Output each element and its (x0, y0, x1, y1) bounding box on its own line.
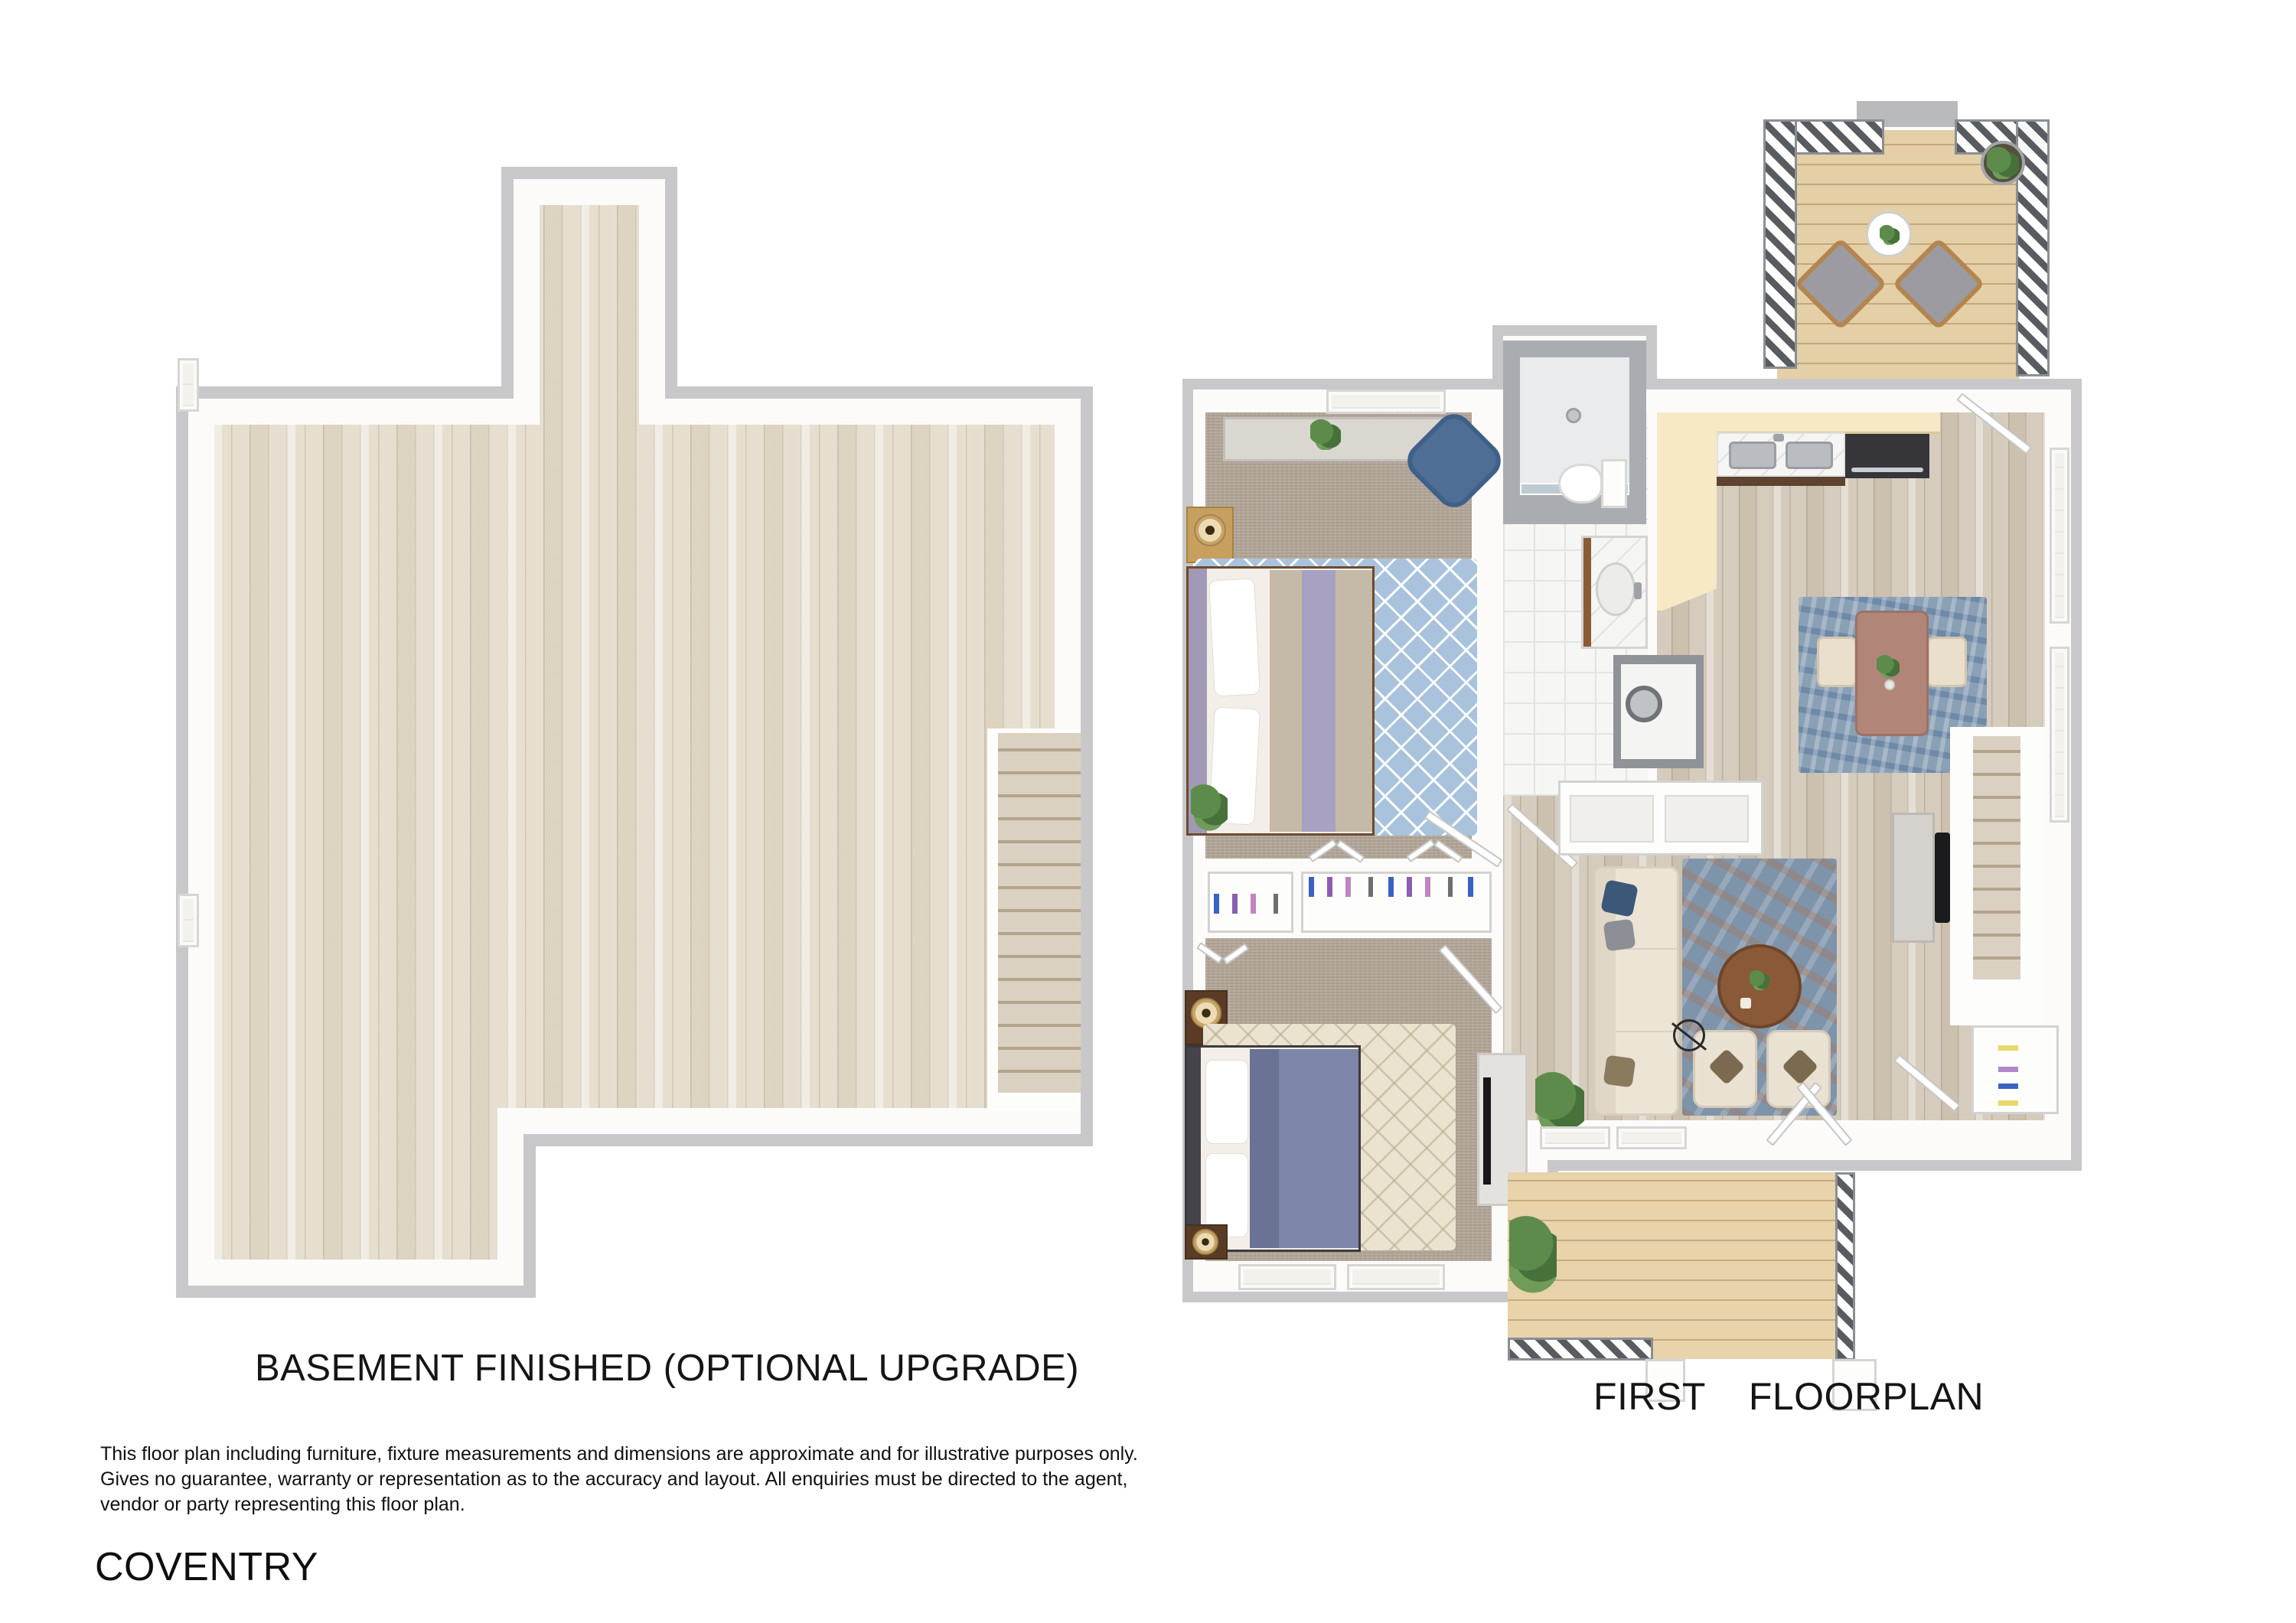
living-window-sill-right (1616, 1126, 1687, 1149)
dining-table-flowers (1877, 655, 1900, 678)
living-window-sill-left (1540, 1126, 1610, 1149)
range-handle (1851, 468, 1923, 472)
closet-right-hangers (1309, 877, 1483, 897)
bedroom2-pillow-1 (1205, 1060, 1248, 1144)
bedroom2-lamp-2 (1192, 1229, 1218, 1255)
porch-deck (1508, 1172, 1837, 1359)
sofa-pillow-gray (1603, 919, 1636, 952)
vanity-faucet (1634, 582, 1642, 599)
washer-door-ring (1626, 686, 1662, 722)
sofa-pillow-brown (1603, 1055, 1636, 1088)
understair-closet-hangers (1998, 1034, 2018, 1106)
first-floor-staircase (1973, 736, 2020, 979)
primary-bedroom-window (1326, 389, 1446, 414)
coffee-table-plant (1750, 970, 1769, 990)
washer (1613, 655, 1704, 768)
basement-window-upper (178, 358, 199, 412)
bedroom2-window-right (1347, 1264, 1445, 1290)
bedroom2-bed-headboard (1187, 1048, 1201, 1250)
toilet-bowl (1558, 464, 1603, 504)
plan-name: COVENTRY (95, 1544, 318, 1590)
sofa-pillow-navy (1600, 879, 1639, 917)
dining-table-vase (1884, 680, 1895, 690)
accent-chair-left-pillow (1708, 1048, 1745, 1085)
dining-chair-right (1927, 637, 1967, 687)
toilet-tank (1601, 459, 1627, 508)
media-console (1892, 813, 1935, 943)
bedroom2-bed (1185, 1045, 1361, 1252)
coffee-table-coaster (1740, 998, 1751, 1009)
vanity (1581, 536, 1648, 649)
kitchen-window-lower (2050, 647, 2069, 823)
porch-plant (1509, 1209, 1557, 1295)
bedroom2-blanket-fold (1250, 1049, 1279, 1248)
kitchen-faucet (1773, 434, 1784, 442)
understair-closet (1971, 1025, 2059, 1114)
floor-lamp-arm (1671, 1022, 1707, 1051)
accent-chair-right (1766, 1030, 1831, 1108)
hall-storage-niche-right (1665, 795, 1749, 842)
vanity-sink (1596, 562, 1636, 616)
dresser-plant (1310, 419, 1341, 450)
pergola-rail-left (1763, 119, 1797, 369)
kitchen-sink-basin-right (1786, 442, 1833, 469)
kitchen-window-upper (2050, 448, 2069, 624)
basement-staircase (998, 733, 1081, 1093)
coffee-table (1717, 944, 1802, 1028)
sofa-seam-2 (1616, 1031, 1677, 1032)
kitchen-sink-basin-left (1729, 442, 1776, 469)
kitchen-counter-left-arm (1657, 412, 1717, 613)
disclaimer: This floor plan including furniture, fix… (100, 1442, 1138, 1517)
disclaimer-line-1: This floor plan including furniture, fix… (100, 1442, 1138, 1467)
primary-bed-pillow-1 (1208, 578, 1261, 697)
kitchen-base-cabinet-edge (1717, 477, 1845, 486)
hall-storage (1558, 781, 1763, 855)
hall-storage-niche-left (1570, 795, 1654, 842)
porch-rail-right (1835, 1172, 1855, 1361)
closet-left-hangers (1214, 894, 1287, 914)
primary-nightstand-lamp (1194, 514, 1226, 546)
disclaimer-line-2: Gives no guarantee, warranty or represen… (100, 1467, 1138, 1492)
primary-bed-runner (1302, 570, 1336, 832)
kitchen-sink-counter (1717, 432, 1845, 477)
basement-window-lower (178, 894, 199, 947)
living-tv (1935, 833, 1950, 923)
bedroom2-tv (1483, 1077, 1491, 1185)
primary-floor-plant (1191, 782, 1228, 831)
shower-drain (1566, 408, 1581, 423)
deck-planter-plant (1987, 147, 2019, 179)
vanity-wood-edge (1583, 538, 1591, 647)
disclaimer-line-3: vendor or party representing this floor … (100, 1492, 1138, 1517)
dining-chair-left (1817, 637, 1857, 687)
basement-floor (213, 204, 1056, 1261)
accent-chair-right-pillow (1782, 1048, 1818, 1085)
first-floor-plan-label: FIRST FLOORPLAN (1593, 1374, 1984, 1419)
kitchen-range (1845, 434, 1929, 478)
basement-plan-label: BASEMENT FINISHED (OPTIONAL UPGRADE) (255, 1347, 1079, 1390)
floor-lamp (1673, 1019, 1705, 1051)
deck-table-plant (1880, 225, 1900, 245)
sofa (1593, 866, 1679, 1116)
porch-rail-bottom-left (1508, 1338, 1653, 1361)
floor-plan-sheet: BASEMENT FINISHED (OPTIONAL UPGRADE) FIR… (0, 0, 2296, 1623)
bedroom2-window-left (1238, 1264, 1336, 1290)
